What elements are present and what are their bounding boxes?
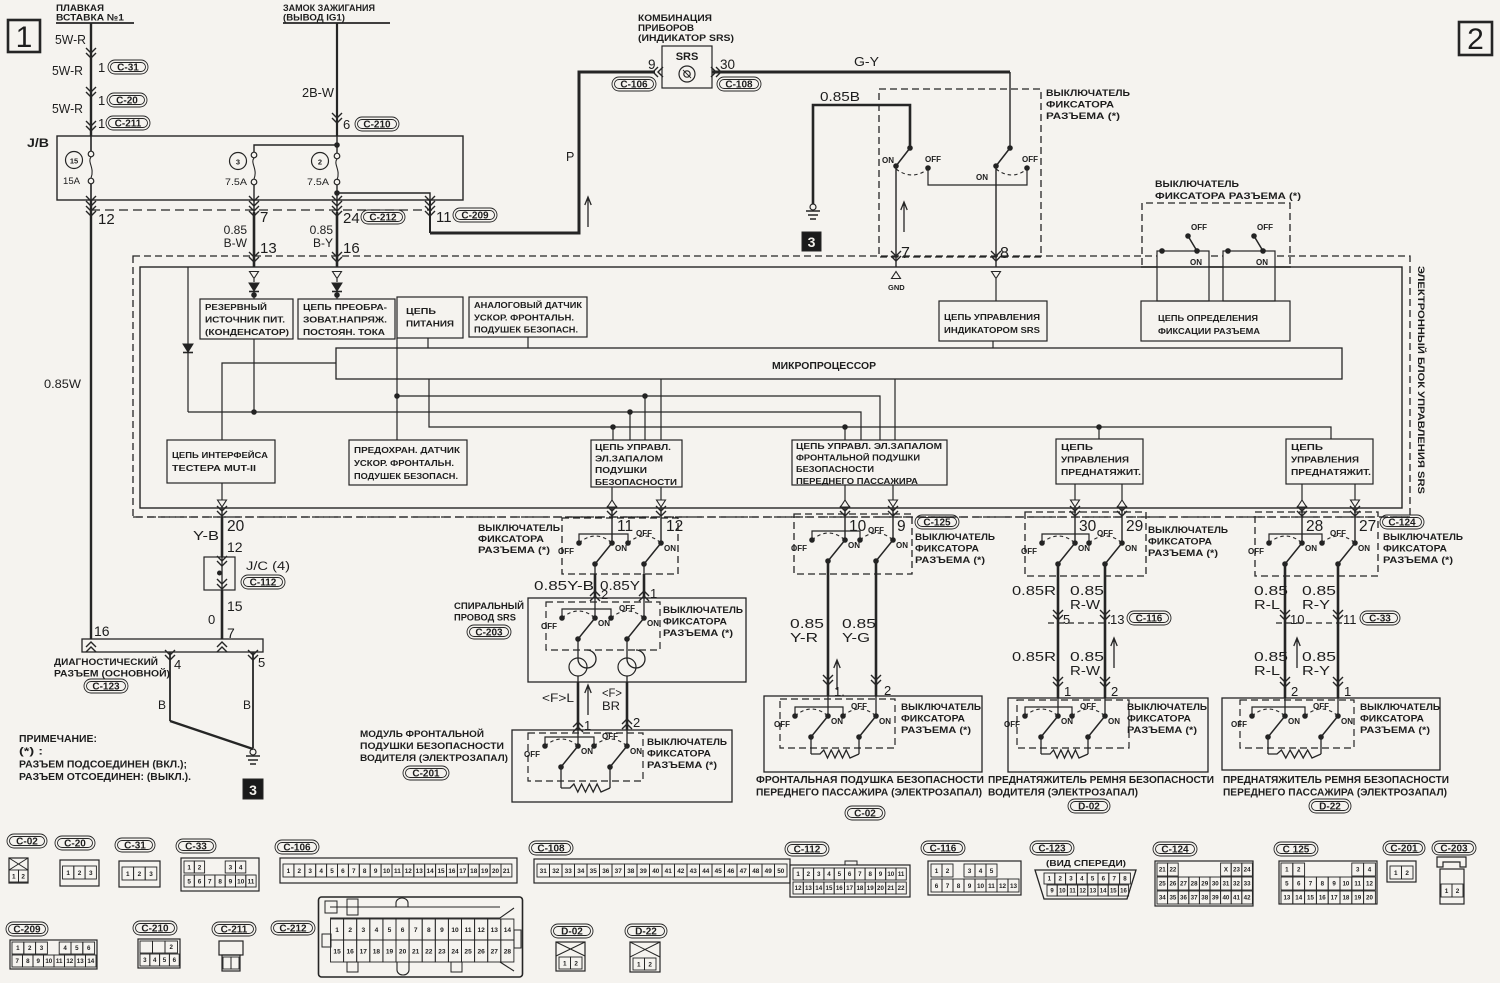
svg-text:13: 13	[260, 240, 277, 257]
svg-text:ON: ON	[581, 747, 593, 756]
svg-text:ЦЕПЬ УПРАВЛ.: ЦЕПЬ УПРАВЛ.	[595, 442, 671, 452]
svg-text:3: 3	[89, 870, 93, 877]
svg-text:C-106: C-106	[283, 843, 311, 854]
svg-text:ON: ON	[598, 619, 610, 628]
svg-text:6: 6	[1102, 876, 1106, 883]
svg-text:C-201: C-201	[412, 769, 440, 780]
svg-text:1: 1	[1285, 867, 1289, 874]
svg-text:ON: ON	[831, 717, 843, 726]
svg-text:1: 1	[1445, 888, 1449, 895]
svg-text:2: 2	[138, 871, 142, 878]
svg-text:7: 7	[15, 958, 19, 965]
svg-text:ON: ON	[1256, 258, 1268, 267]
svg-text:ПРЕДНАТЯЖИТЕЛЬ РЕМНЯ БЕЗОПАСНО: ПРЕДНАТЯЖИТЕЛЬ РЕМНЯ БЕЗОПАСНОСТИ	[988, 775, 1214, 786]
svg-text:13: 13	[416, 868, 424, 875]
svg-text:15: 15	[1307, 895, 1314, 902]
svg-text:12: 12	[405, 868, 413, 875]
svg-text:15A: 15A	[63, 176, 80, 186]
svg-text:2: 2	[1291, 684, 1298, 699]
svg-text:37: 37	[615, 868, 623, 875]
svg-text:(*) :: (*) :	[19, 747, 43, 758]
svg-text:9: 9	[440, 927, 444, 934]
svg-text:ВЫКЛЮЧАТЕЛЬ: ВЫКЛЮЧАТЕЛЬ	[647, 737, 727, 748]
svg-text:17: 17	[459, 868, 467, 875]
svg-text:26: 26	[478, 948, 486, 955]
svg-text:1: 1	[126, 871, 130, 878]
svg-text:ПРЕДНАТЯЖИТ.: ПРЕДНАТЯЖИТ.	[1291, 467, 1371, 477]
svg-text:7: 7	[1309, 881, 1313, 888]
svg-text:16: 16	[1120, 889, 1127, 895]
svg-text:41: 41	[665, 868, 673, 875]
svg-text:C-116: C-116	[1136, 614, 1163, 625]
svg-text:12: 12	[795, 885, 802, 892]
svg-text:14: 14	[1100, 889, 1107, 895]
svg-text:OFF: OFF	[1080, 702, 1096, 711]
svg-text:4: 4	[174, 657, 181, 672]
svg-text:C-108: C-108	[537, 844, 565, 855]
svg-text:7: 7	[1112, 876, 1116, 883]
svg-text:28: 28	[1191, 881, 1198, 888]
svg-text:0.85: 0.85	[1070, 650, 1104, 664]
svg-text:0.85: 0.85	[1302, 584, 1336, 598]
svg-text:R-Y: R-Y	[1302, 664, 1331, 678]
svg-text:32: 32	[1233, 881, 1240, 888]
svg-text:OFF: OFF	[791, 544, 807, 553]
svg-text:15: 15	[826, 885, 833, 892]
svg-text:4: 4	[1368, 867, 1372, 874]
svg-text:3: 3	[143, 957, 147, 964]
svg-text:Y-B: Y-B	[193, 529, 219, 543]
svg-text:21: 21	[1159, 867, 1166, 874]
svg-text:ВЫКЛЮЧАТЕЛЬ: ВЫКЛЮЧАТЕЛЬ	[478, 523, 560, 534]
svg-text:1: 1	[650, 586, 657, 601]
svg-text:27: 27	[1180, 881, 1187, 888]
svg-text:ON: ON	[615, 544, 627, 553]
svg-text:OFF: OFF	[541, 622, 557, 631]
svg-text:2: 2	[21, 873, 25, 880]
svg-text:OFF: OFF	[1097, 529, 1113, 538]
svg-text:1: 1	[1344, 684, 1351, 699]
svg-text:0: 0	[208, 612, 215, 627]
svg-text:OFF: OFF	[851, 702, 867, 711]
svg-text:3: 3	[1356, 867, 1360, 874]
svg-text:РАЗЪЕМА (*): РАЗЪЕМА (*)	[1046, 111, 1120, 122]
svg-text:4: 4	[153, 957, 157, 964]
svg-text:OFF: OFF	[1021, 547, 1037, 556]
svg-text:C-210: C-210	[141, 924, 169, 935]
svg-text:47: 47	[740, 868, 748, 875]
svg-text:<F>L: <F>L	[542, 691, 574, 705]
svg-text:0.85: 0.85	[790, 617, 824, 631]
svg-text:42: 42	[1244, 895, 1251, 902]
svg-text:C-211: C-211	[221, 925, 248, 936]
svg-text:8: 8	[427, 927, 431, 934]
svg-text:ТЕСТЕРА MUT-II: ТЕСТЕРА MUT-II	[172, 463, 256, 473]
svg-text:11: 11	[1354, 881, 1361, 888]
svg-text:14: 14	[1295, 895, 1302, 902]
svg-text:23: 23	[438, 948, 446, 955]
svg-text:6: 6	[198, 878, 202, 885]
svg-text:ФИКСАТОРА: ФИКСАТОРА	[663, 617, 727, 628]
svg-text:GND: GND	[888, 283, 905, 292]
svg-text:10: 10	[451, 927, 459, 934]
svg-text:18: 18	[373, 948, 381, 955]
svg-text:OFF: OFF	[1231, 720, 1247, 729]
svg-text:0.85: 0.85	[842, 617, 876, 631]
svg-text:ПЕРЕДНЕГО ПАССАЖИРА (ЭЛЕКТРОЗА: ПЕРЕДНЕГО ПАССАЖИРА (ЭЛЕКТРОЗАПАЛ)	[1223, 788, 1447, 799]
svg-text:МОДУЛЬ ФРОНТАЛЬНОЙ: МОДУЛЬ ФРОНТАЛЬНОЙ	[360, 728, 484, 740]
svg-text:2: 2	[28, 945, 32, 952]
svg-text:OFF: OFF	[1248, 547, 1264, 556]
svg-text:41: 41	[1233, 895, 1240, 902]
svg-text:5: 5	[1285, 881, 1289, 888]
svg-text:12: 12	[227, 539, 243, 555]
svg-text:12: 12	[1079, 889, 1086, 895]
svg-text:29: 29	[1201, 881, 1208, 888]
svg-text:РАЗЪЕМ (ОСНОВНОЙ): РАЗЪЕМ (ОСНОВНОЙ)	[54, 668, 170, 680]
svg-text:B-W: B-W	[224, 236, 248, 250]
svg-text:45: 45	[715, 868, 723, 875]
svg-text:(ВЫВОД IG1): (ВЫВОД IG1)	[283, 13, 345, 24]
svg-text:C-02: C-02	[16, 837, 38, 848]
svg-text:15: 15	[227, 598, 243, 614]
svg-text:28: 28	[1306, 518, 1323, 535]
svg-text:15: 15	[70, 157, 78, 166]
svg-text:19: 19	[867, 885, 874, 892]
svg-text:17: 17	[846, 885, 853, 892]
svg-text:20: 20	[1366, 895, 1373, 902]
svg-text:25: 25	[464, 948, 472, 955]
svg-text:20: 20	[227, 518, 245, 535]
svg-text:2: 2	[198, 864, 202, 871]
svg-text:31: 31	[540, 868, 548, 875]
svg-text:C-124: C-124	[1388, 518, 1416, 529]
svg-text:R-W: R-W	[1070, 664, 1100, 678]
svg-text:P: P	[566, 150, 574, 164]
svg-text:19: 19	[386, 948, 394, 955]
svg-text:1.: 1.	[834, 684, 845, 699]
svg-text:ПРЕДНАТЯЖИТ.: ПРЕДНАТЯЖИТ.	[1061, 467, 1141, 477]
svg-text:2: 2	[318, 158, 322, 167]
svg-text:7: 7	[901, 245, 910, 262]
svg-text:ИСТОЧНИК ПИТ.: ИСТОЧНИК ПИТ.	[205, 315, 285, 325]
svg-text:C-33: C-33	[1369, 614, 1391, 625]
svg-text:9: 9	[374, 868, 378, 875]
svg-text:4: 4	[239, 864, 243, 871]
svg-text:C-209: C-209	[13, 925, 41, 936]
svg-text:ON: ON	[882, 156, 894, 165]
svg-text:ВЫКЛЮЧАТЕЛЬ: ВЫКЛЮЧАТЕЛЬ	[1127, 702, 1207, 713]
svg-text:<F>: <F>	[602, 686, 622, 700]
svg-text:5: 5	[187, 878, 191, 885]
svg-text:1: 1	[935, 868, 939, 875]
svg-text:10: 10	[849, 518, 867, 535]
svg-text:20: 20	[877, 885, 884, 892]
svg-text:ЦЕПЬ: ЦЕПЬ	[1291, 442, 1323, 452]
svg-text:OFF: OFF	[602, 732, 618, 741]
svg-text:OFF: OFF	[1257, 223, 1273, 232]
svg-text:OFF: OFF	[868, 526, 884, 535]
svg-text:ON: ON	[1288, 717, 1300, 726]
svg-text:РАЗЪЕМ ОТСОЕДИНЕН: (ВЫКЛ.).: РАЗЪЕМ ОТСОЕДИНЕН: (ВЫКЛ.).	[19, 772, 191, 783]
svg-text:12: 12	[1366, 881, 1373, 888]
svg-text:OFF: OFF	[636, 529, 652, 538]
svg-text:25: 25	[1159, 881, 1166, 888]
svg-text:OFF: OFF	[774, 720, 790, 729]
svg-text:ВЫКЛЮЧАТЕЛЬ: ВЫКЛЮЧАТЕЛЬ	[1046, 88, 1130, 99]
svg-text:6: 6	[935, 883, 939, 890]
svg-text:5W-R: 5W-R	[52, 102, 83, 116]
svg-text:РАЗЪЕМА (*): РАЗЪЕМА (*)	[1360, 725, 1430, 736]
svg-text:ФИКСАТОРА: ФИКСАТОРА	[1383, 544, 1447, 555]
svg-text:8: 8	[868, 871, 872, 878]
svg-text:ЦЕПЬ ИНТЕРФЕЙСА: ЦЕПЬ ИНТЕРФЕЙСА	[172, 449, 268, 460]
svg-text:ON: ON	[630, 747, 642, 756]
svg-text:32: 32	[552, 868, 560, 875]
svg-text:10: 10	[1059, 889, 1066, 895]
svg-text:РАЗЪЕМА (*): РАЗЪЕМА (*)	[663, 628, 733, 639]
svg-text:ДИАГНОСТИЧЕСКИЙ: ДИАГНОСТИЧЕСКИЙ	[54, 656, 158, 668]
svg-text:0.85: 0.85	[224, 223, 248, 237]
svg-text:10: 10	[1342, 881, 1349, 888]
svg-text:УСКОР. ФРОНТАЛЬН.: УСКОР. ФРОНТАЛЬН.	[474, 312, 574, 322]
svg-text:0.85Y-B: 0.85Y-B	[534, 579, 594, 593]
svg-text:35: 35	[590, 868, 598, 875]
svg-text:33: 33	[565, 868, 573, 875]
svg-text:ФРОНТАЛЬНОЙ ПОДУШКИ: ФРОНТАЛЬНОЙ ПОДУШКИ	[796, 452, 920, 463]
svg-text:2: 2	[348, 927, 352, 934]
svg-text:13: 13	[805, 885, 812, 892]
svg-text:МИКРОПРОЦЕССОР: МИКРОПРОЦЕССОР	[772, 361, 876, 372]
svg-text:1: 1	[287, 868, 291, 875]
svg-text:0.85R: 0.85R	[1012, 584, 1056, 598]
svg-text:10: 10	[45, 958, 52, 965]
svg-text:ФИКСАТОРА: ФИКСАТОРА	[1360, 714, 1424, 725]
svg-text:ON: ON	[1358, 544, 1370, 553]
svg-text:1: 1	[563, 960, 567, 967]
svg-text:C-203: C-203	[475, 628, 503, 639]
svg-text:0.85: 0.85	[1302, 650, 1336, 664]
svg-text:ВЫКЛЮЧАТЕЛЬ: ВЫКЛЮЧАТЕЛЬ	[1155, 179, 1239, 190]
svg-text:УПРАВЛЕНИЯ: УПРАВЛЕНИЯ	[1291, 455, 1359, 465]
svg-text:ON: ON	[1061, 717, 1073, 726]
svg-text:2: 2	[648, 961, 652, 968]
svg-text:30: 30	[720, 57, 735, 72]
svg-text:15: 15	[333, 948, 341, 955]
svg-text:5: 5	[1091, 876, 1095, 883]
svg-text:19: 19	[481, 868, 489, 875]
svg-text:11: 11	[617, 518, 633, 535]
svg-text:5: 5	[258, 655, 265, 670]
svg-text:9: 9	[36, 958, 40, 965]
svg-text:6: 6	[341, 868, 345, 875]
svg-text:1: 1	[98, 116, 105, 131]
svg-text:2: 2	[1467, 23, 1484, 56]
svg-text:ПРОВОД SRS: ПРОВОД SRS	[454, 613, 516, 624]
svg-text:J/B: J/B	[27, 136, 49, 150]
svg-text:ФРОНТАЛЬНАЯ ПОДУШКА БЕЗОПАСНОС: ФРОНТАЛЬНАЯ ПОДУШКА БЕЗОПАСНОСТИ	[756, 775, 984, 786]
svg-text:ЭЛ.ЗАПАЛОМ: ЭЛ.ЗАПАЛОМ	[595, 454, 663, 464]
svg-text:2: 2	[298, 868, 302, 875]
svg-text:14: 14	[504, 927, 512, 934]
svg-text:16: 16	[836, 885, 843, 892]
svg-text:ПОДУШКИ: ПОДУШКИ	[595, 465, 647, 475]
svg-text:3: 3	[817, 871, 821, 878]
svg-text:14: 14	[87, 958, 94, 965]
svg-text:29: 29	[1126, 518, 1143, 535]
svg-text:BR: BR	[602, 699, 620, 713]
svg-text:48: 48	[752, 868, 760, 875]
svg-text:8: 8	[26, 958, 30, 965]
svg-text:OFF: OFF	[1313, 702, 1329, 711]
svg-text:ФИКСАТОРА РАЗЪЕМА (*): ФИКСАТОРА РАЗЪЕМА (*)	[1155, 191, 1301, 202]
svg-text:РАЗЪЕМА (*): РАЗЪЕМА (*)	[901, 725, 971, 736]
svg-text:Y-R: Y-R	[790, 631, 818, 645]
svg-text:2: 2	[946, 868, 950, 875]
svg-text:9: 9	[1332, 881, 1336, 888]
svg-text:5: 5	[163, 957, 167, 964]
svg-text:18: 18	[1342, 895, 1349, 902]
svg-text:B: B	[158, 698, 166, 712]
svg-text:11: 11	[436, 209, 452, 226]
svg-text:10: 10	[237, 878, 245, 885]
svg-text:49: 49	[765, 868, 773, 875]
svg-text:18: 18	[470, 868, 478, 875]
svg-text:16: 16	[1319, 895, 1326, 902]
svg-text:D-02: D-02	[1078, 802, 1100, 813]
svg-text:ВЫКЛЮЧАТЕЛЬ: ВЫКЛЮЧАТЕЛЬ	[1383, 532, 1463, 543]
svg-text:C-210: C-210	[363, 120, 391, 131]
svg-text:C-123: C-123	[92, 682, 120, 693]
svg-text:ПОДУШЕК БЕЗОПАСН.: ПОДУШЕК БЕЗОПАСН.	[354, 471, 458, 481]
svg-text:УСКОР. ФРОНТАЛЬН.: УСКОР. ФРОНТАЛЬН.	[354, 458, 454, 468]
svg-text:21: 21	[412, 948, 420, 955]
svg-text:6: 6	[173, 957, 177, 964]
svg-text:15: 15	[1110, 889, 1117, 895]
svg-text:11: 11	[465, 927, 472, 934]
svg-text:ON: ON	[896, 541, 908, 550]
svg-text:27: 27	[1359, 518, 1376, 535]
svg-text:1: 1	[335, 927, 339, 934]
svg-text:2: 2	[574, 960, 578, 967]
svg-text:(ВИД СПЕРЕДИ): (ВИД СПЕРЕДИ)	[1046, 858, 1126, 868]
svg-text:8: 8	[1000, 245, 1009, 262]
svg-text:22: 22	[898, 885, 905, 892]
svg-text:12: 12	[478, 927, 486, 934]
svg-text:2: 2	[1058, 876, 1062, 883]
svg-text:30: 30	[1079, 518, 1097, 535]
svg-text:ЦЕПЬ УПРАВЛ. ЭЛ.ЗАПАЛОМ: ЦЕПЬ УПРАВЛ. ЭЛ.ЗАПАЛОМ	[796, 441, 942, 451]
svg-text:БЕЗОПАСНОСТИ: БЕЗОПАСНОСТИ	[796, 464, 874, 474]
svg-text:7: 7	[414, 927, 418, 934]
svg-text:11: 11	[1343, 612, 1357, 627]
svg-text:8: 8	[957, 883, 961, 890]
svg-text:ПЕРЕДНЕГО ПАССАЖИРА (ЭЛЕКТРОЗА: ПЕРЕДНЕГО ПАССАЖИРА (ЭЛЕКТРОЗАПАЛ)	[756, 788, 982, 799]
svg-text:ФИКСАТОРА: ФИКСАТОРА	[1127, 714, 1191, 725]
svg-text:ЦЕПЬ ОПРЕДЕЛЕНИЯ: ЦЕПЬ ОПРЕДЕЛЕНИЯ	[1158, 313, 1258, 323]
svg-text:11: 11	[988, 883, 995, 890]
svg-text:OFF: OFF	[1191, 223, 1207, 232]
svg-text:ON: ON	[1190, 258, 1202, 267]
svg-text:6: 6	[1297, 881, 1301, 888]
svg-text:ИНДИКАТОРОМ SRS: ИНДИКАТОРОМ SRS	[944, 325, 1040, 335]
svg-text:2: 2	[601, 587, 608, 602]
svg-text:9: 9	[229, 878, 233, 885]
svg-text:13: 13	[491, 927, 499, 934]
svg-text:3: 3	[308, 868, 312, 875]
svg-text:22: 22	[1169, 867, 1176, 874]
svg-text:3: 3	[361, 927, 365, 934]
svg-text:РЕЗЕРВНЫЙ: РЕЗЕРВНЫЙ	[205, 301, 267, 312]
svg-text:8: 8	[1321, 881, 1325, 888]
svg-text:C-112: C-112	[794, 845, 821, 856]
svg-text:C-116: C-116	[930, 844, 957, 855]
svg-text:ФИКСАТОРА: ФИКСАТОРА	[478, 534, 544, 545]
svg-text:13: 13	[1090, 889, 1097, 895]
svg-text:4: 4	[375, 927, 379, 934]
svg-text:ПОДУШКИ БЕЗОПАСНОСТИ: ПОДУШКИ БЕЗОПАСНОСТИ	[360, 741, 504, 752]
svg-text:2: 2	[1297, 867, 1301, 874]
svg-text:C-33: C-33	[185, 842, 207, 853]
svg-text:C-02: C-02	[854, 809, 876, 820]
svg-text:16: 16	[94, 623, 110, 639]
svg-text:OFF: OFF	[619, 604, 635, 613]
svg-text:7: 7	[208, 878, 212, 885]
svg-text:13: 13	[1283, 895, 1290, 902]
svg-text:ON: ON	[1305, 544, 1317, 553]
svg-text:0.85W: 0.85W	[44, 377, 82, 391]
svg-text:36: 36	[602, 868, 610, 875]
svg-text:11: 11	[56, 958, 63, 965]
svg-text:ПРЕДОХРАН. ДАТЧИК: ПРЕДОХРАН. ДАТЧИК	[354, 445, 461, 455]
svg-text:22: 22	[425, 948, 433, 955]
svg-text:3: 3	[236, 158, 240, 167]
svg-text:C-124: C-124	[1161, 845, 1189, 856]
svg-text:ФИКСАТОРА: ФИКСАТОРА	[901, 714, 965, 725]
svg-text:ON: ON	[1341, 717, 1353, 726]
svg-text:ВСТАВКА №1: ВСТАВКА №1	[56, 13, 125, 24]
svg-text:B: B	[243, 698, 251, 712]
svg-text:ON: ON	[1125, 544, 1137, 553]
svg-text:12: 12	[98, 211, 115, 228]
svg-text:ВЫКЛЮЧАТЕЛЬ: ВЫКЛЮЧАТЕЛЬ	[1360, 702, 1440, 713]
svg-text:5W-R: 5W-R	[52, 64, 83, 78]
svg-text:D-22: D-22	[635, 927, 657, 938]
svg-text:7: 7	[858, 871, 862, 878]
svg-text:10: 10	[977, 883, 985, 890]
svg-text:8: 8	[1123, 876, 1127, 883]
svg-text:OFF: OFF	[925, 155, 941, 164]
svg-text:13: 13	[77, 958, 84, 965]
svg-text:33: 33	[1244, 881, 1251, 888]
svg-text:36: 36	[1180, 895, 1187, 902]
svg-text:26: 26	[1169, 881, 1176, 888]
svg-text:R-W: R-W	[1070, 598, 1100, 612]
svg-text:14: 14	[427, 868, 435, 875]
svg-text:D-22: D-22	[1319, 802, 1341, 813]
svg-text:9: 9	[968, 883, 972, 890]
svg-text:B-Y: B-Y	[313, 236, 333, 250]
svg-text:16: 16	[343, 240, 360, 257]
svg-text:ON: ON	[879, 717, 891, 726]
svg-text:7.5A: 7.5A	[225, 177, 247, 187]
svg-text:ПРИМЕЧАНИЕ:: ПРИМЕЧАНИЕ:	[19, 734, 97, 745]
svg-text:1: 1	[98, 93, 105, 108]
svg-text:C-211: C-211	[115, 119, 142, 130]
svg-text:2: 2	[169, 944, 173, 951]
svg-text:7.5A: 7.5A	[307, 177, 329, 187]
svg-text:ВЫКЛЮЧАТЕЛЬ: ВЫКЛЮЧАТЕЛЬ	[663, 605, 743, 616]
